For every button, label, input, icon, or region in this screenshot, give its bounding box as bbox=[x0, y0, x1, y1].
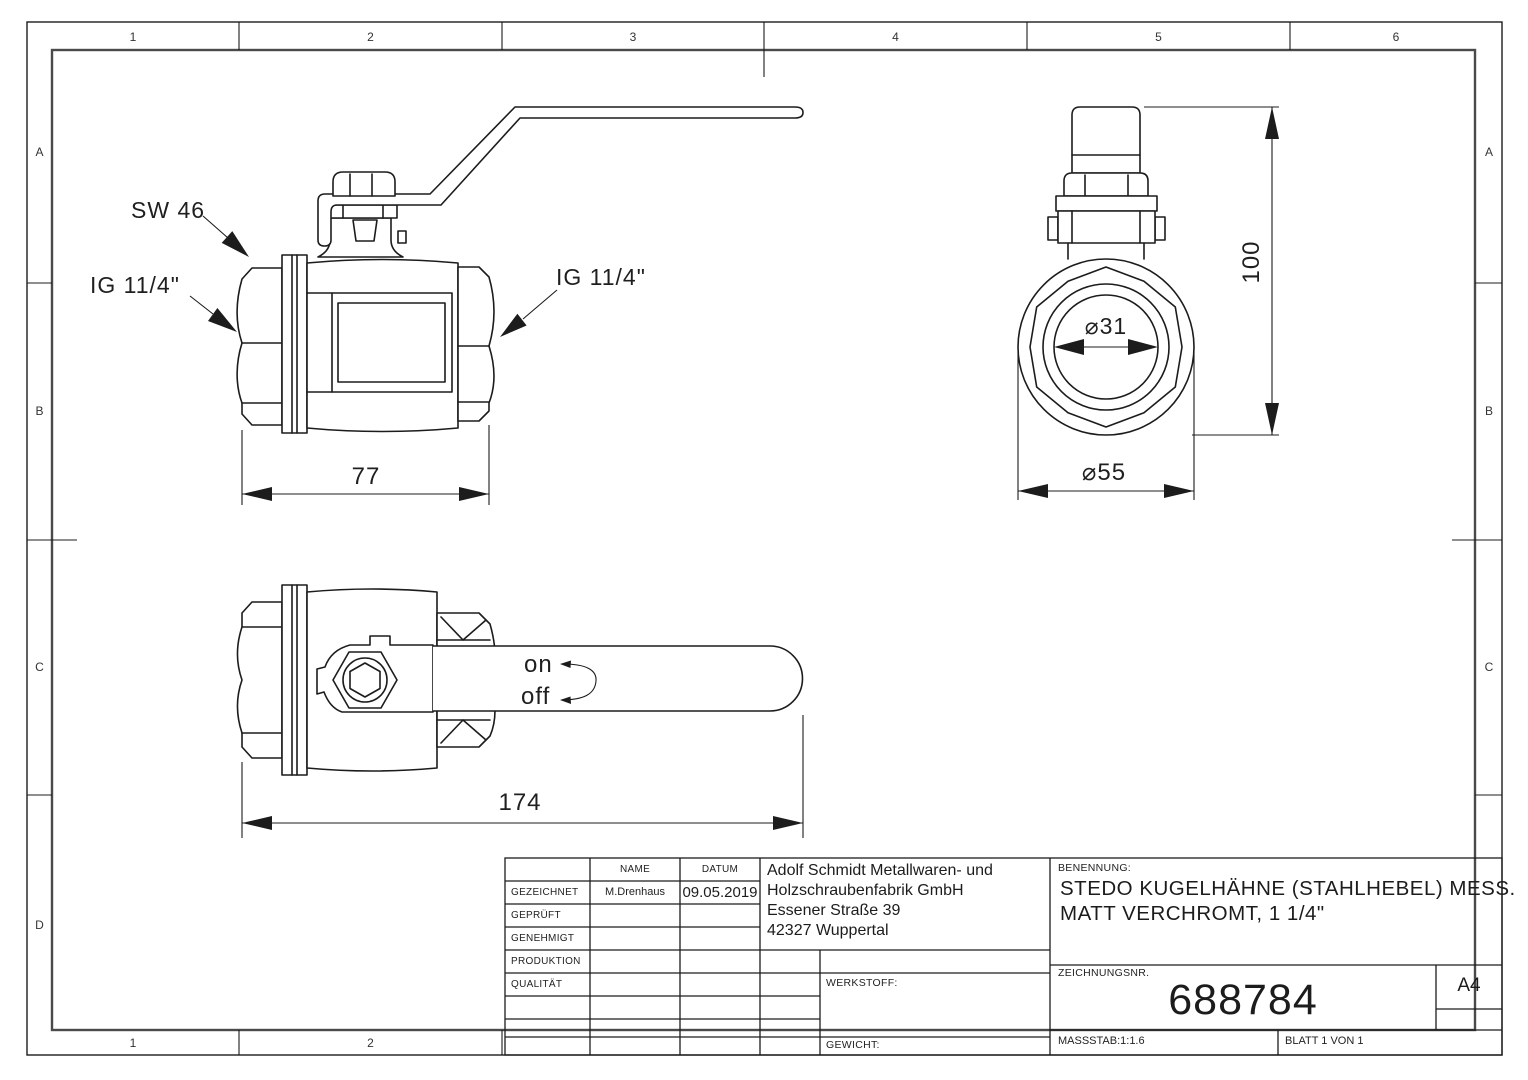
tb-header-date: DATUM bbox=[680, 864, 760, 875]
grid-col-label-top-4: 4 bbox=[764, 27, 1027, 47]
tb-row-checked: GEPRÜFT bbox=[511, 910, 561, 921]
tb-drawn-name: M.Drenhaus bbox=[590, 886, 680, 898]
tb-weight-label: GEWICHT: bbox=[826, 1039, 880, 1051]
dim-height-100: 100 bbox=[1238, 227, 1266, 297]
tb-scale: MASSSTAB:1:1.6 bbox=[1058, 1035, 1145, 1047]
dim-width-77: 77 bbox=[336, 463, 396, 491]
grid-row-label-right-c: C bbox=[1476, 657, 1502, 677]
tb-company-line1: Adolf Schmidt Metallwaren- und bbox=[767, 861, 1051, 881]
tb-drawing-no: 688784 bbox=[1050, 976, 1436, 1024]
grid-col-label-bottom-2: 2 bbox=[239, 1033, 502, 1053]
grid-col-label-top-1: 1 bbox=[27, 27, 239, 47]
grid-col-label-bottom-1: 1 bbox=[27, 1033, 239, 1053]
drawing-sheet: 1 2 3 4 5 6 1 2 A B C D A B C SW 46 IG 1… bbox=[0, 0, 1528, 1080]
grid-row-label-right-a: A bbox=[1476, 142, 1502, 162]
tb-sheet: BLATT 1 VON 1 bbox=[1285, 1035, 1363, 1047]
tb-row-approved: GENEHMIGT bbox=[511, 933, 574, 944]
dim-length-174: 174 bbox=[480, 789, 560, 817]
grid-col-label-top-6: 6 bbox=[1290, 27, 1502, 47]
grid-col-label-top-2: 2 bbox=[239, 27, 502, 47]
grid-col-label-top-5: 5 bbox=[1027, 27, 1290, 47]
end-view bbox=[1018, 107, 1279, 500]
tb-header-name: NAME bbox=[590, 864, 680, 875]
tb-row-production: PRODUKTION bbox=[511, 956, 581, 967]
tb-part-title: STEDO KUGELHÄHNE (STAHLHEBEL) MESS. MATT… bbox=[1060, 876, 1516, 926]
tb-company-line3: Essener Straße 39 bbox=[767, 901, 1051, 921]
grid-row-label-right-b: B bbox=[1476, 401, 1502, 421]
callout-thread-left: IG 11/4" bbox=[90, 272, 180, 299]
tb-part-title-line2: MATT VERCHROMT, 1 1/4" bbox=[1060, 901, 1516, 926]
callout-wrench-size: SW 46 bbox=[131, 197, 205, 224]
tb-row-drawn: GEZEICHNET bbox=[511, 887, 578, 898]
grid-row-label-left-a: A bbox=[27, 142, 52, 162]
tb-company-line2: Holzschraubenfabrik GmbH bbox=[767, 881, 1051, 901]
front-view bbox=[190, 107, 803, 505]
dim-outer-55: ⌀55 bbox=[1068, 458, 1140, 487]
tb-company-line4: 42327 Wuppertal bbox=[767, 921, 1051, 941]
dim-bore-31: ⌀31 bbox=[1075, 313, 1137, 340]
grid-row-label-left-d: D bbox=[27, 915, 52, 935]
tb-company-address: Adolf Schmidt Metallwaren- und Holzschra… bbox=[767, 861, 1051, 941]
tb-part-title-line1: STEDO KUGELHÄHNE (STAHLHEBEL) MESS. bbox=[1060, 876, 1516, 901]
handle-off-label: off bbox=[521, 683, 550, 711]
tb-paper-format: A4 bbox=[1436, 975, 1502, 997]
grid-row-label-left-b: B bbox=[27, 401, 52, 421]
grid-row-label-left-c: C bbox=[27, 657, 52, 677]
tb-drawn-date: 09.05.2019 bbox=[680, 884, 760, 901]
grid-col-label-top-3: 3 bbox=[502, 27, 764, 47]
tb-title-label: BENENNUNG: bbox=[1058, 862, 1131, 874]
tb-material-label: WERKSTOFF: bbox=[826, 977, 898, 989]
callout-thread-right: IG 11/4" bbox=[556, 264, 646, 291]
handle-on-label: on bbox=[524, 651, 553, 679]
tb-row-quality: QUALITÄT bbox=[511, 979, 562, 990]
